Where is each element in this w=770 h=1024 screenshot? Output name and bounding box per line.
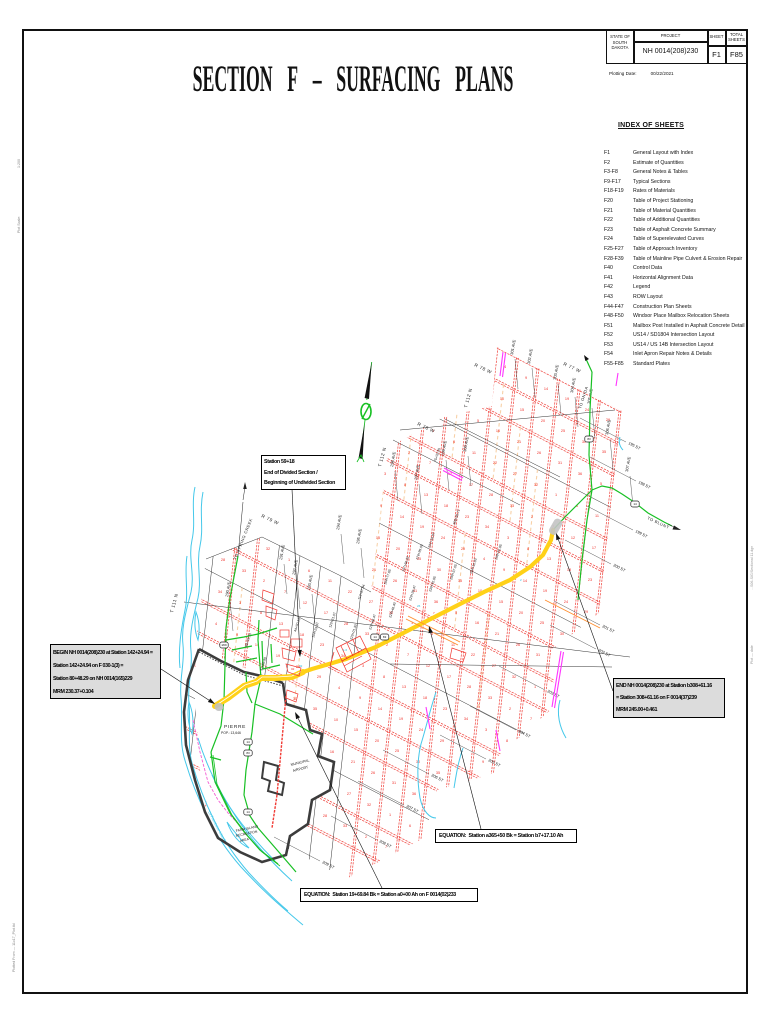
svg-text:34: 34	[218, 590, 222, 594]
svg-text:AIRPORT: AIRPORT	[292, 765, 309, 773]
svg-text:29: 29	[317, 675, 321, 679]
svg-text:4: 4	[338, 686, 340, 690]
svg-text:7: 7	[530, 717, 532, 721]
svg-text:83: 83	[246, 751, 250, 755]
svg-text:02: 02	[299, 664, 303, 668]
svg-text:7: 7	[433, 611, 435, 615]
svg-text:TO BLUNT: TO BLUNT	[647, 515, 671, 530]
svg-text:14: 14	[400, 515, 404, 519]
svg-text:19: 19	[276, 654, 280, 658]
svg-text:14: 14	[246, 810, 250, 814]
svg-text:13: 13	[424, 493, 428, 497]
svg-text:27: 27	[369, 600, 373, 604]
svg-text:R 79 W: R 79 W	[261, 513, 280, 526]
svg-text:1: 1	[389, 813, 391, 817]
svg-text:249+37.05: 249+37.05	[449, 564, 458, 581]
svg-text:8: 8	[527, 547, 529, 551]
svg-text:224+46.40: 224+46.40	[388, 602, 397, 619]
svg-text:10: 10	[500, 397, 504, 401]
svg-text:11: 11	[328, 579, 332, 583]
svg-text:16: 16	[496, 429, 500, 433]
svg-text:PIERRE: PIERRE	[224, 724, 246, 730]
svg-text:295 AVE: 295 AVE	[355, 528, 363, 544]
svg-text:20: 20	[396, 547, 400, 551]
svg-text:28: 28	[489, 493, 493, 497]
svg-text:3: 3	[485, 728, 487, 732]
svg-text:16: 16	[475, 621, 479, 625]
svg-text:5: 5	[477, 419, 479, 423]
svg-text:33: 33	[343, 824, 347, 828]
svg-text:35: 35	[602, 450, 606, 454]
svg-text:20: 20	[541, 419, 545, 423]
svg-text:24: 24	[441, 536, 445, 540]
svg-text:198 ST: 198 ST	[638, 479, 652, 490]
svg-text:308+35.71: 308+35.71	[452, 509, 461, 526]
svg-text:18: 18	[423, 696, 427, 700]
svg-text:31: 31	[558, 461, 562, 465]
svg-text:28: 28	[323, 814, 327, 818]
svg-text:33: 33	[365, 632, 369, 636]
svg-text:7: 7	[407, 653, 409, 657]
svg-text:20: 20	[519, 611, 523, 615]
svg-text:22: 22	[348, 590, 352, 594]
svg-text:15: 15	[520, 408, 524, 412]
svg-text:19: 19	[399, 717, 403, 721]
svg-text:9: 9	[236, 633, 238, 637]
svg-text:9: 9	[359, 696, 361, 700]
svg-text:1: 1	[288, 558, 290, 562]
svg-text:13: 13	[279, 622, 283, 626]
svg-text:8: 8	[383, 675, 385, 679]
svg-text:19: 19	[543, 589, 547, 593]
svg-text:2: 2	[520, 578, 522, 582]
svg-text:1.6: 1.6	[343, 648, 348, 652]
svg-text:T 112 N: T 112 N	[377, 447, 387, 468]
svg-text:6: 6	[409, 824, 411, 828]
svg-text:14: 14	[544, 387, 548, 391]
svg-text:254+10.00: 254+10.00	[469, 558, 478, 575]
svg-text:17: 17	[592, 546, 596, 550]
svg-text:302 AVE: 302 AVE	[526, 348, 534, 364]
svg-text:34: 34	[464, 717, 468, 721]
svg-text:204 ST: 204 ST	[518, 728, 532, 739]
svg-text:35: 35	[458, 579, 462, 583]
svg-text:30: 30	[560, 632, 564, 636]
svg-text:296 AVE: 296 AVE	[389, 451, 397, 467]
svg-text:19: 19	[420, 525, 424, 529]
svg-text:21: 21	[495, 632, 499, 636]
svg-text:8: 8	[506, 739, 508, 743]
svg-text:22: 22	[471, 653, 475, 657]
svg-text:13: 13	[402, 685, 406, 689]
svg-text:9: 9	[482, 760, 484, 764]
svg-text:AREA: AREA	[239, 837, 250, 843]
svg-text:14: 14	[523, 579, 527, 583]
svg-text:7: 7	[284, 590, 286, 594]
svg-text:32: 32	[367, 803, 371, 807]
svg-text:300 AVE: 300 AVE	[462, 436, 470, 452]
svg-text:3: 3	[239, 601, 241, 605]
svg-text:14: 14	[246, 740, 250, 744]
svg-text:28: 28	[467, 685, 471, 689]
svg-text:26: 26	[537, 451, 541, 455]
svg-text:3: 3	[362, 664, 364, 668]
svg-text:T 111 N: T 111 N	[169, 593, 179, 613]
svg-text:21: 21	[372, 568, 376, 572]
svg-text:4: 4	[215, 622, 217, 626]
svg-text:8: 8	[404, 483, 406, 487]
svg-text:18: 18	[444, 504, 448, 508]
svg-text:200 ST: 200 ST	[613, 562, 627, 573]
svg-text:24: 24	[564, 600, 568, 604]
svg-text:32: 32	[266, 547, 270, 551]
svg-text:199 ST: 199 ST	[635, 528, 649, 539]
svg-text:83: 83	[383, 635, 387, 639]
svg-text:POP.: 13,646: POP.: 13,646	[221, 731, 241, 735]
svg-text:22: 22	[493, 461, 497, 465]
svg-text:32: 32	[512, 675, 516, 679]
svg-text:6: 6	[453, 440, 455, 444]
svg-text:292 AVE: 292 AVE	[291, 559, 299, 575]
svg-text:4: 4	[483, 557, 485, 561]
svg-text:294 AVE: 294 AVE	[335, 514, 343, 530]
svg-text:239+92.95: 239+92.95	[428, 576, 437, 593]
svg-text:88+09.70: 88+09.70	[244, 632, 252, 647]
svg-text:23: 23	[465, 515, 469, 519]
svg-text:307 AVE: 307 AVE	[624, 456, 632, 472]
svg-text:11: 11	[595, 514, 599, 518]
svg-text:12: 12	[571, 536, 575, 540]
svg-text:299 AVE: 299 AVE	[440, 440, 448, 456]
svg-text:1: 1	[534, 685, 536, 689]
svg-text:241+16.57: 241+16.57	[427, 532, 436, 549]
svg-text:26: 26	[393, 579, 397, 583]
svg-text:113+87.84: 113+87.84	[357, 584, 366, 600]
svg-text:2: 2	[408, 451, 410, 455]
svg-text:33: 33	[242, 569, 246, 573]
svg-text:R 78 W: R 78 W	[474, 362, 493, 375]
svg-text:194+77.65: 194+77.65	[383, 569, 392, 586]
svg-text:9: 9	[525, 376, 527, 380]
svg-text:7: 7	[429, 461, 431, 465]
svg-text:36: 36	[578, 472, 582, 476]
svg-text:2: 2	[263, 579, 265, 583]
svg-text:23: 23	[443, 707, 447, 711]
svg-text:27: 27	[492, 664, 496, 668]
svg-text:303 AVE: 303 AVE	[552, 364, 560, 380]
svg-text:14: 14	[633, 502, 637, 506]
svg-text:T 112 N: T 112 N	[463, 388, 473, 409]
svg-text:24: 24	[585, 408, 589, 412]
svg-text:21: 21	[517, 440, 521, 444]
svg-text:297 AVE: 297 AVE	[413, 464, 421, 480]
svg-text:176+99.00: 176+99.00	[415, 544, 424, 561]
svg-text:11: 11	[472, 451, 476, 455]
svg-text:27: 27	[513, 472, 517, 476]
svg-text:R 78 W: R 78 W	[417, 421, 436, 434]
svg-text:10: 10	[334, 718, 338, 722]
svg-text:31: 31	[392, 781, 396, 785]
svg-text:25: 25	[395, 749, 399, 753]
svg-text:16: 16	[330, 750, 334, 754]
svg-text:13: 13	[547, 557, 551, 561]
svg-text:12: 12	[303, 601, 307, 605]
svg-text:32: 32	[534, 483, 538, 487]
svg-text:219+48.47: 219+48.47	[368, 614, 377, 631]
svg-text:02: 02	[291, 667, 295, 671]
svg-text:17: 17	[324, 611, 328, 615]
svg-text:5: 5	[455, 611, 457, 615]
svg-text:201 ST: 201 ST	[602, 623, 616, 634]
svg-text:2: 2	[365, 835, 367, 839]
svg-text:18: 18	[300, 633, 304, 637]
svg-text:26: 26	[371, 771, 375, 775]
svg-text:35: 35	[313, 707, 317, 711]
svg-text:28: 28	[344, 622, 348, 626]
svg-text:20: 20	[375, 739, 379, 743]
svg-text:17: 17	[447, 675, 451, 679]
svg-text:30: 30	[437, 568, 441, 572]
svg-text:1: 1	[555, 493, 557, 497]
svg-text:36: 36	[412, 792, 416, 796]
svg-text:34: 34	[485, 525, 489, 529]
svg-text:83: 83	[587, 437, 591, 441]
svg-text:14: 14	[373, 635, 377, 639]
svg-text:2: 2	[531, 515, 533, 519]
svg-text:15: 15	[354, 728, 358, 732]
svg-text:25: 25	[561, 429, 565, 433]
svg-text:206 ST: 206 ST	[431, 772, 445, 783]
svg-text:44+00.13: 44+00.13	[293, 617, 301, 632]
svg-text:26: 26	[417, 604, 421, 608]
svg-text:301 AVE: 301 AVE	[509, 339, 517, 355]
svg-text:36: 36	[434, 600, 438, 604]
svg-text:29: 29	[461, 547, 465, 551]
svg-text:5: 5	[600, 482, 602, 486]
svg-text:23: 23	[320, 643, 324, 647]
svg-text:24: 24	[419, 728, 423, 732]
svg-text:R 77 W: R 77 W	[563, 361, 582, 374]
svg-text:31: 31	[536, 653, 540, 657]
svg-text:9: 9	[380, 504, 382, 508]
svg-text:33: 33	[510, 504, 514, 508]
svg-text:15: 15	[499, 600, 503, 604]
svg-text:2: 2	[509, 707, 511, 711]
svg-text:207 ST: 207 ST	[406, 803, 420, 814]
svg-text:304 AVE: 304 AVE	[569, 377, 577, 393]
svg-text:195 ST: 195 ST	[628, 440, 642, 451]
svg-text:27: 27	[347, 792, 351, 796]
svg-text:15: 15	[376, 536, 380, 540]
svg-text:202 ST: 202 ST	[598, 647, 612, 658]
svg-text:28: 28	[221, 558, 225, 562]
svg-text:209 ST: 209 ST	[322, 859, 336, 870]
svg-text:33: 33	[488, 696, 492, 700]
svg-text:14: 14	[378, 707, 382, 711]
svg-text:9: 9	[503, 568, 505, 572]
svg-text:205 ST: 205 ST	[488, 757, 502, 768]
svg-text:1806: 1806	[221, 644, 227, 647]
svg-text:3: 3	[507, 536, 509, 540]
svg-text:TO SPRING CREEK: TO SPRING CREEK	[232, 517, 253, 560]
svg-text:29: 29	[440, 739, 444, 743]
svg-text:249+92.95: 249+92.95	[494, 544, 503, 561]
svg-text:25: 25	[540, 621, 544, 625]
svg-text:19: 19	[565, 397, 569, 401]
svg-text:293 AVE: 293 AVE	[306, 574, 314, 590]
svg-text:3: 3	[384, 472, 386, 476]
svg-text:21: 21	[351, 760, 355, 764]
svg-text:6: 6	[308, 569, 310, 573]
svg-text:23: 23	[588, 578, 592, 582]
